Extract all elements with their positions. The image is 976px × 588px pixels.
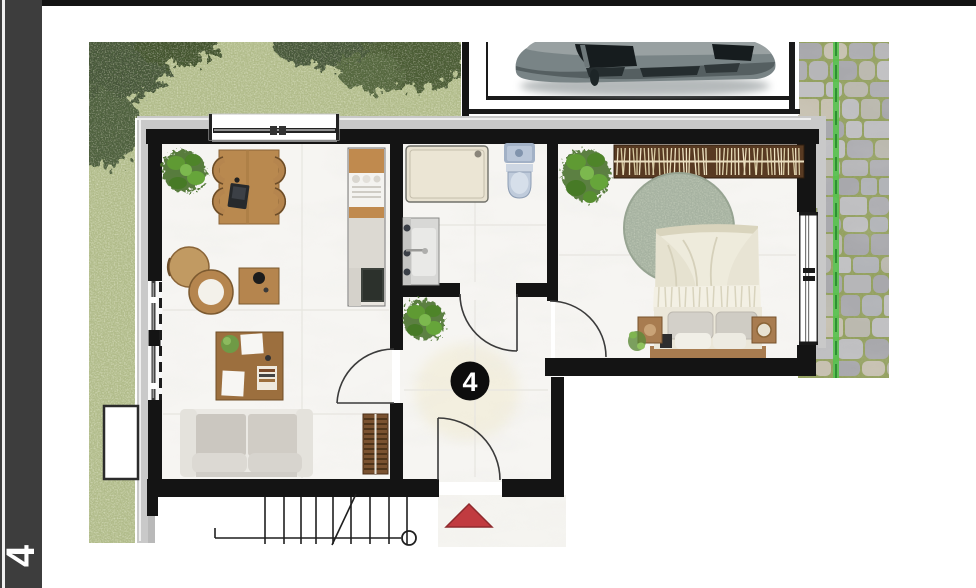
svg-text:4: 4 xyxy=(462,367,477,397)
svg-text:4: 4 xyxy=(0,544,43,567)
